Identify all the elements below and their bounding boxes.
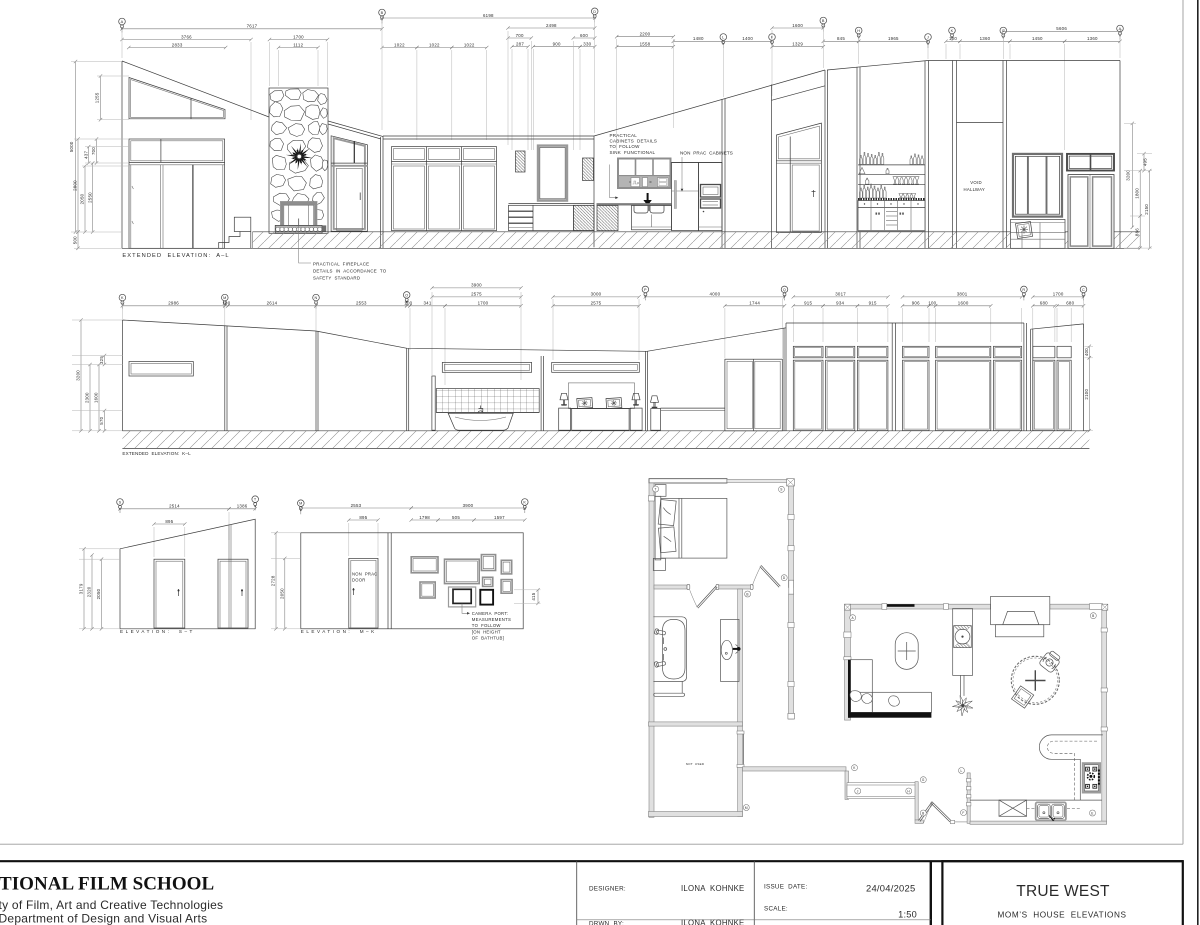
svg-text:1965: 1965 xyxy=(888,36,899,41)
svg-text:CABINETS DETAILS: CABINETS DETAILS xyxy=(610,139,658,144)
svg-text:100: 100 xyxy=(928,301,936,306)
svg-text:ELEVATION: S–T: ELEVATION: S–T xyxy=(120,629,195,634)
svg-text:1255: 1255 xyxy=(94,92,99,103)
svg-text:E: E xyxy=(1091,811,1093,815)
svg-text:24/04/2025: 24/04/2025 xyxy=(866,883,915,894)
svg-text:934: 934 xyxy=(836,301,844,306)
svg-text:1022: 1022 xyxy=(394,42,405,47)
svg-text:M: M xyxy=(223,296,226,300)
svg-text:D: D xyxy=(783,576,786,580)
svg-text:2553: 2553 xyxy=(351,503,362,508)
svg-text:1744: 1744 xyxy=(749,301,760,306)
svg-text:HALLWAY: HALLWAY xyxy=(964,187,986,192)
svg-text:SCALE:: SCALE: xyxy=(764,906,788,913)
svg-text:2150: 2150 xyxy=(1144,204,1149,215)
svg-text:NON PRAC: NON PRAC xyxy=(352,572,378,577)
svg-text:900: 900 xyxy=(553,42,561,47)
svg-text:Q: Q xyxy=(783,288,786,292)
svg-text:EXTENDED ELEVATION: A–L: EXTENDED ELEVATION: A–L xyxy=(122,253,229,259)
svg-text:895: 895 xyxy=(165,519,173,524)
svg-text:VOID: VOID xyxy=(970,180,982,185)
svg-text:3200: 3200 xyxy=(76,370,81,381)
svg-text:C: C xyxy=(1082,288,1085,292)
svg-text:CAMERA PORT:: CAMERA PORT: xyxy=(472,611,508,616)
svg-text:5606: 5606 xyxy=(1056,26,1067,31)
svg-text:5000: 5000 xyxy=(69,141,74,152)
svg-text:3200: 3200 xyxy=(1125,170,1130,181)
svg-text:2550: 2550 xyxy=(87,192,92,203)
svg-text:H: H xyxy=(907,789,910,793)
svg-text:L: L xyxy=(722,36,724,40)
svg-text:SAFETY STANDARD: SAFETY STANDARD xyxy=(313,275,360,280)
svg-text:2050: 2050 xyxy=(96,588,101,599)
svg-text:1400: 1400 xyxy=(742,36,753,41)
svg-text:T: T xyxy=(254,498,257,502)
svg-text:4000: 4000 xyxy=(710,292,721,297)
svg-text:341: 341 xyxy=(423,301,431,306)
svg-text:ILONA KOHNKE: ILONA KOHNKE xyxy=(681,884,744,893)
svg-text:2320: 2320 xyxy=(87,586,92,597)
svg-text:1600: 1600 xyxy=(94,392,99,403)
svg-text:1360: 1360 xyxy=(1087,36,1098,41)
svg-text:3900: 3900 xyxy=(471,283,482,288)
svg-text:680: 680 xyxy=(1066,301,1074,306)
svg-text:1700: 1700 xyxy=(1053,292,1064,297)
svg-text:NOT USED: NOT USED xyxy=(686,762,705,766)
svg-text:ILONA KOHNKE: ILONA KOHNKE xyxy=(681,919,744,925)
svg-text:K: K xyxy=(121,296,124,300)
svg-text:700: 700 xyxy=(91,147,96,155)
svg-text:PRACTICAL: PRACTICAL xyxy=(610,133,638,138)
svg-text:TIONAL FILM SCHOOL: TIONAL FILM SCHOOL xyxy=(0,874,214,895)
svg-text:1558: 1558 xyxy=(640,42,651,47)
svg-text:B: B xyxy=(922,811,924,815)
svg-text:2300: 2300 xyxy=(85,392,90,403)
svg-text:3801: 3801 xyxy=(957,292,968,297)
svg-text:100: 100 xyxy=(404,301,412,306)
svg-text:1450: 1450 xyxy=(1032,36,1043,41)
svg-text:2498: 2498 xyxy=(546,23,557,28)
svg-text:MEASUREMENTS: MEASUREMENTS xyxy=(472,617,511,622)
svg-text:1386: 1386 xyxy=(237,504,248,509)
svg-text:S: S xyxy=(780,488,782,492)
svg-text:2575: 2575 xyxy=(471,292,482,297)
svg-text:EXTENDED ELEVATION: K–L: EXTENDED ELEVATION: K–L xyxy=(122,451,191,456)
svg-text:F: F xyxy=(962,811,964,815)
svg-text:B: B xyxy=(381,11,384,15)
svg-text:400: 400 xyxy=(1084,348,1089,356)
svg-text:J: J xyxy=(927,36,929,40)
svg-text:415: 415 xyxy=(531,592,536,600)
svg-text:1022: 1022 xyxy=(464,42,475,47)
svg-text:680: 680 xyxy=(1040,301,1048,306)
svg-text:2575: 2575 xyxy=(591,301,602,306)
svg-text:3000: 3000 xyxy=(591,292,602,297)
svg-text:1600: 1600 xyxy=(792,23,803,28)
svg-text:886: 886 xyxy=(1134,228,1139,236)
svg-text:2986: 2986 xyxy=(168,301,179,306)
svg-text:[ON HEIGHT: [ON HEIGHT xyxy=(472,629,501,634)
svg-text:1329: 1329 xyxy=(792,42,803,47)
svg-text:P: P xyxy=(644,288,647,292)
svg-text:TRUE WEST: TRUE WEST xyxy=(1016,883,1110,900)
svg-text:B: B xyxy=(1092,614,1094,618)
svg-text:K: K xyxy=(523,501,526,505)
svg-text:DRWN BY:: DRWN BY: xyxy=(589,921,624,925)
svg-text:D: D xyxy=(593,10,596,14)
svg-text:M: M xyxy=(299,502,302,506)
svg-text:437: 437 xyxy=(83,150,88,158)
svg-text:1480: 1480 xyxy=(693,36,704,41)
svg-text:3017: 3017 xyxy=(835,292,846,297)
svg-text:B: B xyxy=(822,19,825,23)
svg-text:J: J xyxy=(857,789,859,793)
svg-text:TO FOLLOW: TO FOLLOW xyxy=(610,144,641,149)
svg-text:600: 600 xyxy=(580,33,588,38)
svg-text:287: 287 xyxy=(516,42,524,47)
svg-text:1700: 1700 xyxy=(478,301,489,306)
svg-text:330: 330 xyxy=(583,42,591,47)
svg-text:2728: 2728 xyxy=(271,575,276,586)
svg-text:700: 700 xyxy=(516,33,524,38)
svg-text:A: A xyxy=(121,20,124,24)
svg-text:2050: 2050 xyxy=(80,193,85,204)
svg-text:L: L xyxy=(960,769,962,773)
svg-text:S: S xyxy=(119,501,122,505)
svg-text:ty of Film, Art and Creative T: ty of Film, Art and Creative Technologie… xyxy=(0,898,223,912)
svg-text:1597: 1597 xyxy=(494,515,505,520)
svg-text:100: 100 xyxy=(949,36,957,41)
svg-text:915: 915 xyxy=(804,301,812,306)
svg-text:K: K xyxy=(951,29,954,33)
svg-text:3900: 3900 xyxy=(463,503,474,508)
svg-text:3179: 3179 xyxy=(79,583,84,594)
svg-text:7617: 7617 xyxy=(247,24,258,29)
svg-text:Department of Design and Visua: Department of Design and Visual Arts xyxy=(0,912,207,925)
svg-text:2200: 2200 xyxy=(640,32,651,37)
svg-text:DOOR: DOOR xyxy=(352,578,366,583)
svg-text:1022: 1022 xyxy=(429,42,440,47)
svg-text:M: M xyxy=(745,806,748,810)
svg-text:NON PRAC CABINETS: NON PRAC CABINETS xyxy=(680,151,733,156)
svg-text:N: N xyxy=(315,296,318,300)
svg-text:906: 906 xyxy=(912,301,920,306)
svg-text:R: R xyxy=(1022,288,1025,292)
svg-text:325: 325 xyxy=(99,356,104,364)
svg-text:2553: 2553 xyxy=(356,301,367,306)
svg-text:2800: 2800 xyxy=(73,180,78,191)
svg-text:DETAILS IN ACCORDANCE TO: DETAILS IN ACCORDANCE TO xyxy=(313,268,387,273)
svg-text:OF BATHTUB]: OF BATHTUB] xyxy=(472,636,504,641)
svg-text:1800: 1800 xyxy=(1134,188,1139,199)
svg-text:DESIGNER:: DESIGNER: xyxy=(589,886,626,893)
svg-text:6198: 6198 xyxy=(483,13,494,18)
svg-text:ISSUE DATE:: ISSUE DATE: xyxy=(764,884,807,891)
svg-text:1360: 1360 xyxy=(980,36,991,41)
svg-text:SINK FUNCTIONAL: SINK FUNCTIONAL xyxy=(610,150,656,155)
svg-text:845: 845 xyxy=(837,36,845,41)
svg-text:H: H xyxy=(857,29,860,33)
svg-text:3766: 3766 xyxy=(181,34,192,39)
svg-text:G: G xyxy=(922,778,925,782)
svg-text:1:50: 1:50 xyxy=(898,910,917,920)
svg-text:915: 915 xyxy=(869,301,877,306)
svg-text:495: 495 xyxy=(1143,158,1148,166)
svg-text:TO FOLLOW: TO FOLLOW xyxy=(472,623,502,628)
svg-text:895: 895 xyxy=(359,515,367,520)
svg-text:505: 505 xyxy=(452,515,460,520)
svg-text:500: 500 xyxy=(73,236,78,244)
svg-text:B: B xyxy=(746,592,748,596)
svg-text:2614: 2614 xyxy=(267,301,278,306)
svg-text:1798: 1798 xyxy=(419,515,430,520)
svg-text:2100: 2100 xyxy=(1084,389,1089,400)
svg-text:2050: 2050 xyxy=(279,588,284,599)
svg-text:1700: 1700 xyxy=(293,34,304,39)
svg-text:2833: 2833 xyxy=(172,42,183,47)
svg-text:O: O xyxy=(405,293,408,297)
svg-text:ELEVATION: M–K: ELEVATION: M–K xyxy=(301,629,377,634)
svg-text:100: 100 xyxy=(222,301,230,306)
svg-text:PRACTICAL FIREPLACE: PRACTICAL FIREPLACE xyxy=(313,261,369,266)
svg-text:2514: 2514 xyxy=(169,504,180,509)
svg-text:MOM’S HOUSE ELEVATIONS: MOM’S HOUSE ELEVATIONS xyxy=(998,911,1127,920)
svg-text:T: T xyxy=(654,487,656,491)
svg-text:1600: 1600 xyxy=(958,301,969,306)
svg-text:570: 570 xyxy=(99,416,104,424)
svg-text:1112: 1112 xyxy=(293,42,303,47)
